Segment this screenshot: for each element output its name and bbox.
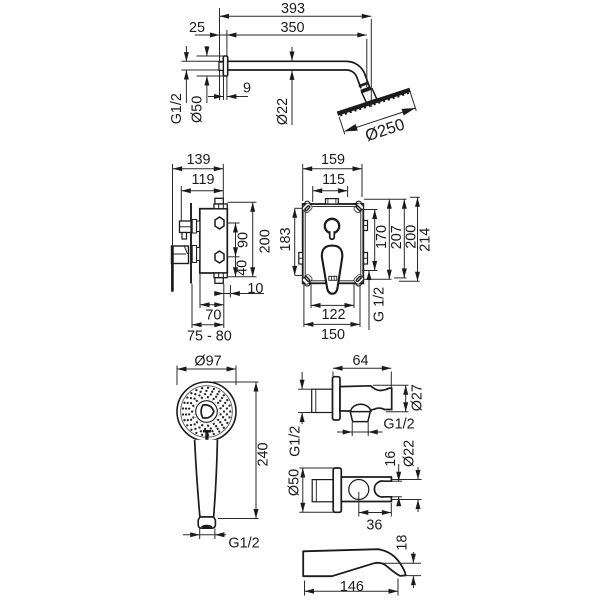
svg-text:G1/2: G1/2: [287, 426, 303, 457]
svg-text:64: 64: [352, 353, 368, 369]
svg-text:36: 36: [366, 518, 382, 534]
svg-text:115: 115: [322, 172, 345, 188]
svg-text:240: 240: [255, 442, 271, 466]
svg-text:207: 207: [389, 225, 405, 249]
svg-text:Ø27: Ø27: [409, 384, 425, 411]
svg-text:170: 170: [374, 225, 390, 249]
svg-text:G 1/2: G 1/2: [371, 287, 387, 322]
svg-text:350: 350: [280, 20, 304, 36]
svg-text:139: 139: [186, 152, 210, 168]
svg-text:183: 183: [278, 227, 294, 251]
svg-text:G1/2: G1/2: [228, 535, 259, 551]
svg-text:Ø22: Ø22: [275, 98, 291, 125]
svg-text:G1/2: G1/2: [383, 417, 414, 433]
svg-text:Ø97: Ø97: [194, 354, 221, 370]
svg-text:18: 18: [395, 535, 411, 551]
svg-text:40: 40: [235, 260, 251, 276]
svg-text:150: 150: [321, 327, 345, 343]
svg-text:Ø50: Ø50: [190, 96, 206, 123]
svg-text:214: 214: [418, 228, 434, 252]
svg-text:25: 25: [189, 20, 205, 36]
svg-text:146: 146: [340, 579, 364, 595]
svg-text:393: 393: [281, 1, 305, 17]
svg-text:10: 10: [247, 281, 263, 297]
svg-text:Ø22: Ø22: [402, 440, 418, 467]
svg-text:16: 16: [383, 451, 399, 467]
svg-text:75 - 80: 75 - 80: [187, 328, 232, 344]
svg-text:159: 159: [321, 152, 345, 168]
svg-text:122: 122: [321, 307, 345, 323]
svg-text:119: 119: [192, 172, 215, 188]
svg-text:90: 90: [235, 232, 251, 248]
svg-text:Ø50: Ø50: [287, 469, 303, 496]
svg-text:9: 9: [243, 81, 251, 97]
svg-text:70: 70: [205, 308, 221, 324]
svg-text:200: 200: [257, 229, 273, 253]
svg-text:G1/2: G1/2: [169, 93, 185, 124]
